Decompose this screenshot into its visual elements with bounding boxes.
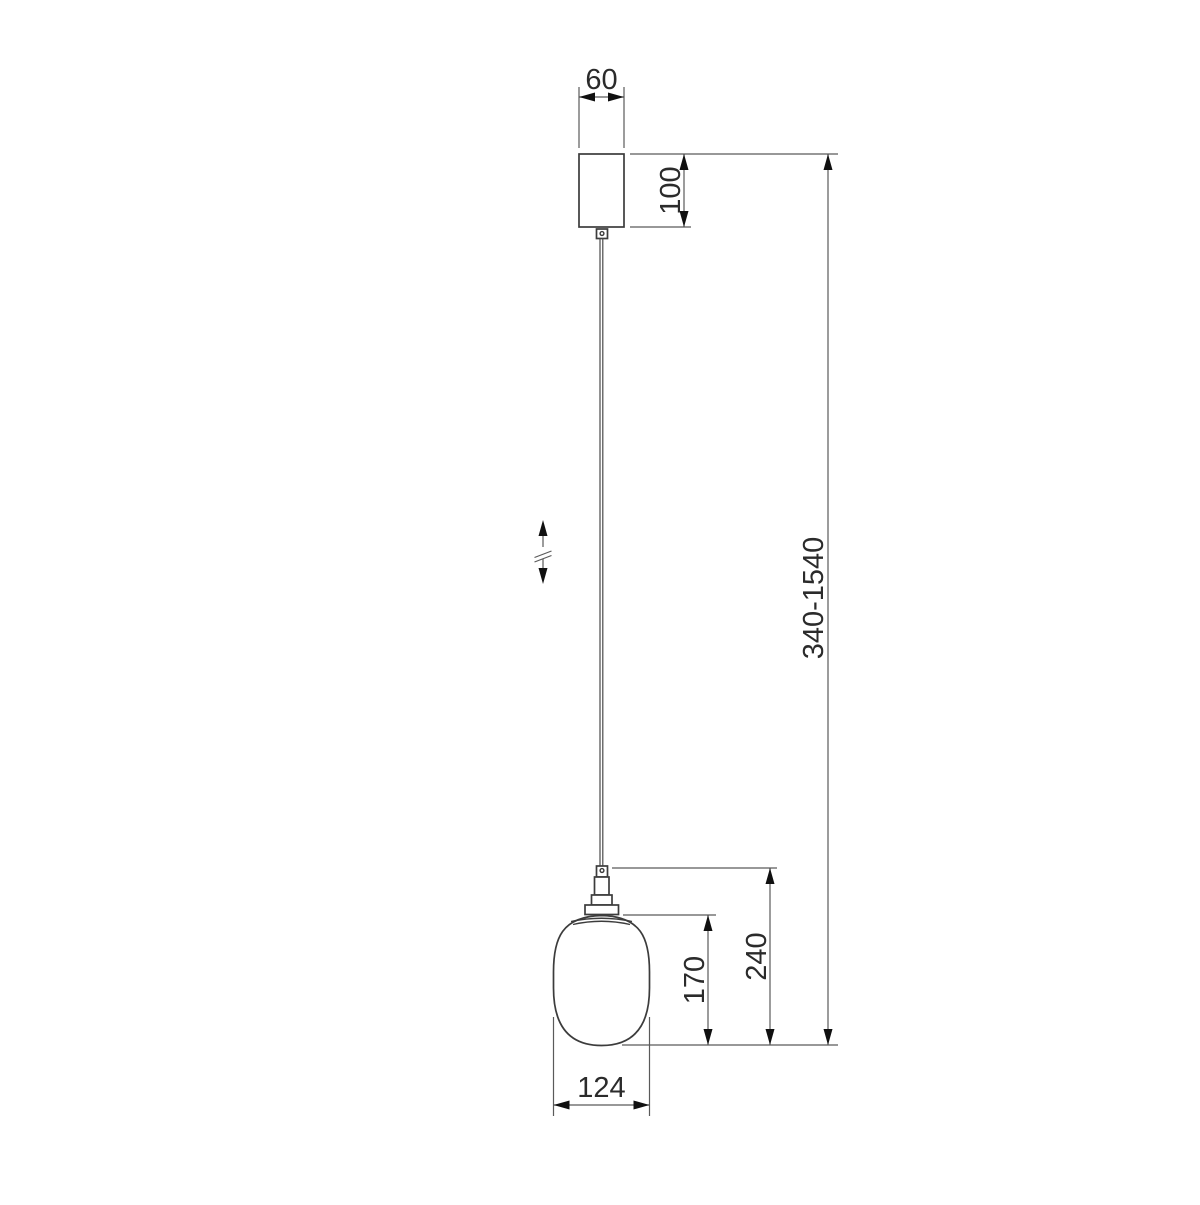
dimension-drawing-canvas: 60 100 340-1540 240 <box>0 0 1200 1200</box>
socket-cord-connector <box>597 866 608 877</box>
adjust-down-arrowhead <box>539 568 548 584</box>
dim-label-canopy-width: 60 <box>585 64 617 96</box>
arrowhead-down <box>824 1029 833 1045</box>
dim-canopy-width: 60 <box>579 64 624 148</box>
canopy-cord-connector <box>597 229 608 239</box>
dim-canopy-height: 100 <box>630 154 838 227</box>
dim-label-overall-height: 340-1540 <box>798 537 830 660</box>
socket-step <box>592 895 613 905</box>
arrowhead-up <box>766 868 775 884</box>
dim-overall-height: 340-1540 <box>798 154 833 1045</box>
socket-flange <box>585 905 619 915</box>
dim-label-shade-height: 170 <box>679 956 711 1004</box>
height-adjust-icon <box>535 520 552 584</box>
arrowhead-up <box>824 154 833 170</box>
arrowhead-down <box>766 1029 775 1045</box>
pendant-lamp-dimension-drawing: 60 100 340-1540 240 <box>0 0 1200 1200</box>
glass-shade <box>554 916 650 1046</box>
pendant-lamp-outline <box>554 154 650 1046</box>
adjust-up-arrowhead <box>539 520 548 536</box>
dim-label-fixture-drop: 240 <box>741 932 773 980</box>
arrowhead-left <box>554 1101 570 1110</box>
arrowhead-up <box>704 915 713 931</box>
socket-stem <box>595 877 610 895</box>
dim-label-canopy-height: 100 <box>655 166 687 214</box>
arrowhead-right <box>634 1101 650 1110</box>
dim-label-shade-width: 124 <box>577 1072 625 1104</box>
ceiling-canopy <box>579 154 624 227</box>
arrowhead-down <box>704 1029 713 1045</box>
